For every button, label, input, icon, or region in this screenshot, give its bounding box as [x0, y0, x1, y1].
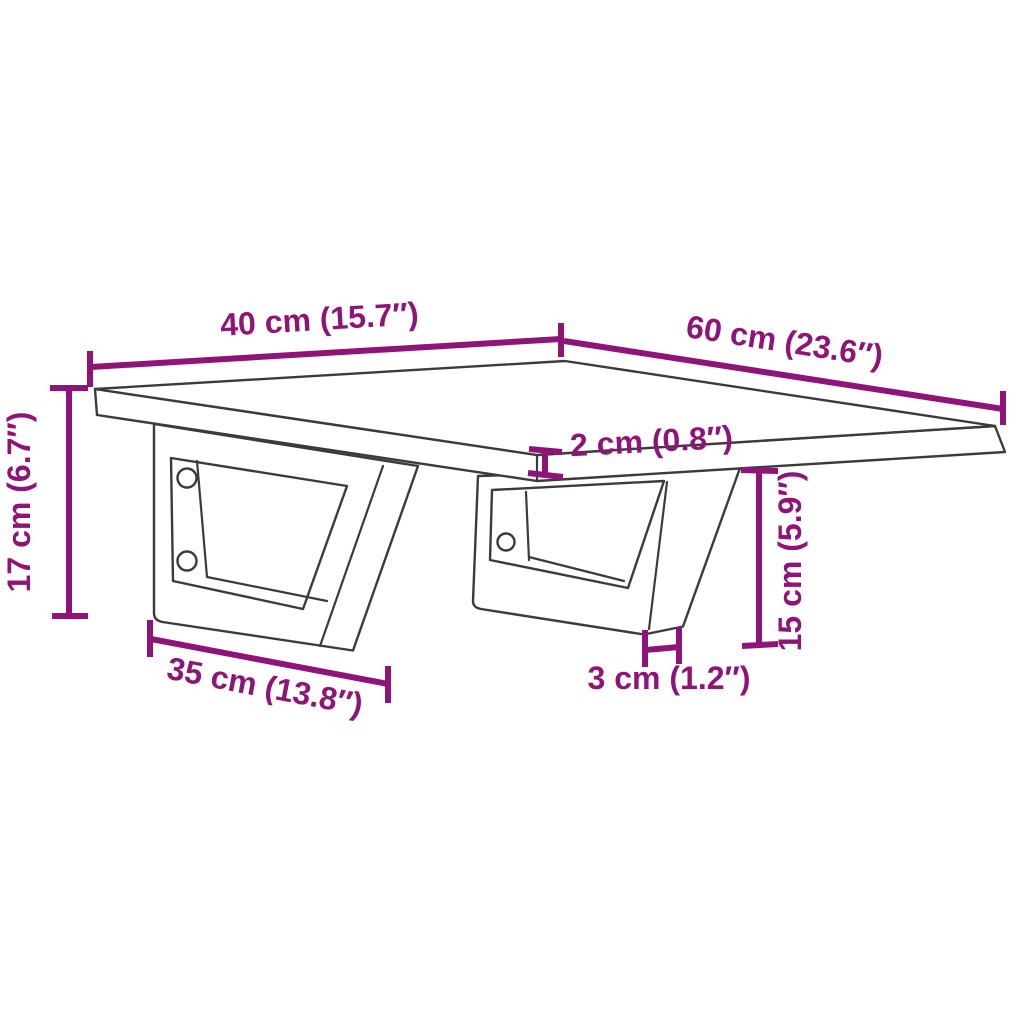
dimension-leg-width: 3 cm (1.2″) [588, 627, 751, 696]
dimension-line [91, 339, 561, 367]
dimension-diagram: 40 cm (15.7″) 60 cm (23.6″) 17 cm (6.7″)… [0, 0, 1024, 1024]
left-bracket-screw-hole-top [178, 469, 197, 488]
right-bracket [473, 468, 740, 635]
dim-17cm-label: 17 cm (6.7″) [1, 412, 37, 593]
shelf-dimension-drawing: 40 cm (15.7″) 60 cm (23.6″) 17 cm (6.7″)… [0, 0, 1024, 1024]
dim-40cm-label: 40 cm (15.7″) [219, 295, 419, 343]
right-bracket-screw-hole [498, 534, 515, 551]
dimension-leg-height: 15 cm (5.9″) [741, 470, 808, 651]
dimension-line [645, 647, 679, 650]
dimension-tick [528, 473, 563, 477]
dimension-tick [529, 449, 562, 452]
left-bracket-screw-hole-bottom [178, 552, 197, 571]
dim-15cm-label: 15 cm (5.9″) [772, 471, 808, 652]
dimension-bracket-height: 17 cm (6.7″) [1, 388, 88, 616]
dim-3cm-label: 3 cm (1.2″) [588, 660, 751, 696]
